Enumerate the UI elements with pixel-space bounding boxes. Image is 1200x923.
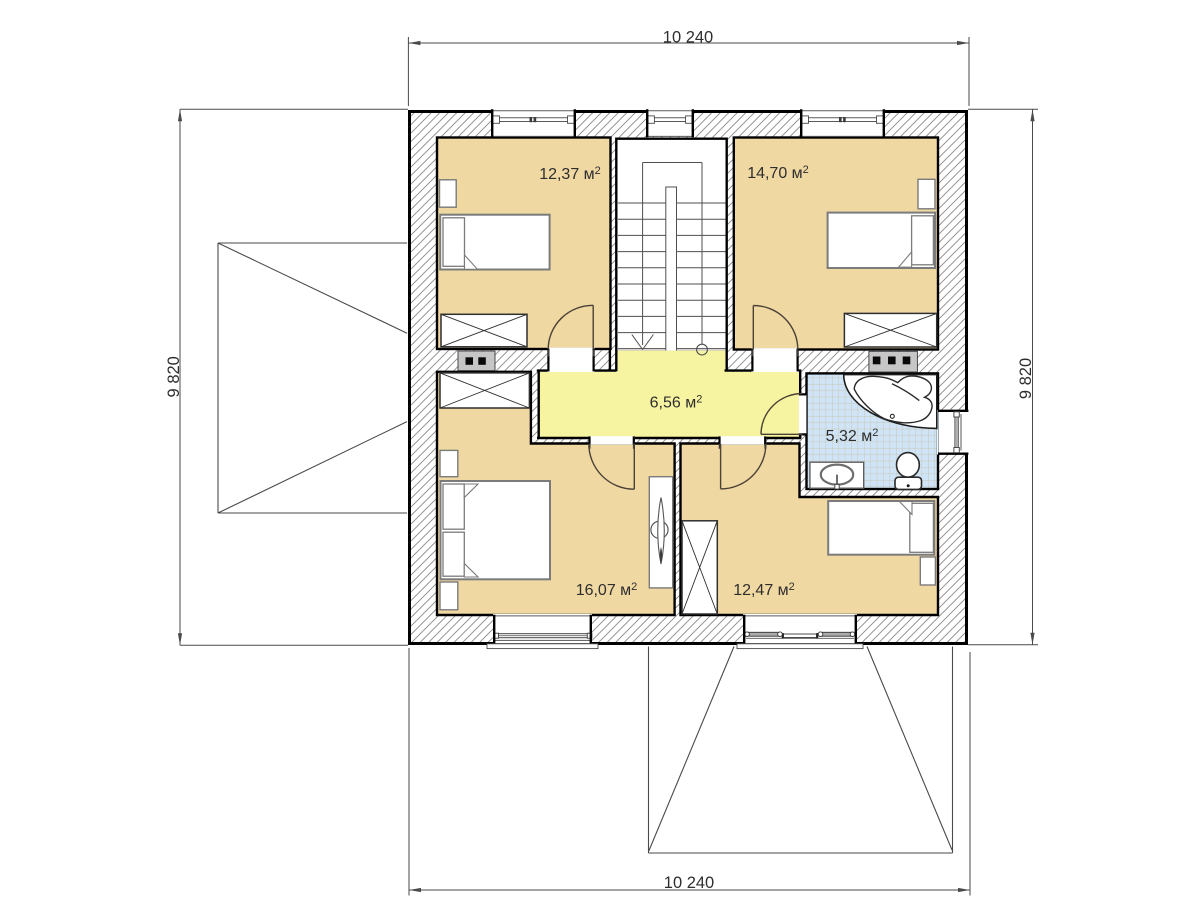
svg-text:10 240: 10 240 bbox=[663, 28, 713, 46]
svg-text:16,07 м2: 16,07 м2 bbox=[576, 581, 638, 599]
svg-text:6,56 м2: 6,56 м2 bbox=[650, 394, 703, 412]
svg-text:10 240: 10 240 bbox=[664, 874, 714, 892]
svg-text:5,32 м2: 5,32 м2 bbox=[826, 427, 879, 445]
svg-text:9 820: 9 820 bbox=[165, 356, 183, 397]
svg-text:12,37 м2: 12,37 м2 bbox=[539, 165, 601, 183]
svg-text:14,70 м2: 14,70 м2 bbox=[747, 164, 809, 182]
svg-text:9 820: 9 820 bbox=[1017, 358, 1035, 399]
svg-text:12,47 м2: 12,47 м2 bbox=[733, 581, 795, 599]
